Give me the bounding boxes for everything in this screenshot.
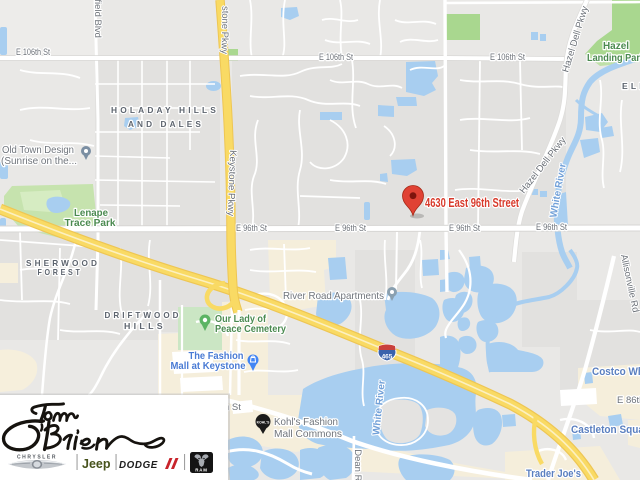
svg-text:ELLER: ELLER [622, 81, 640, 91]
svg-text:Mall at Keystone: Mall at Keystone [171, 360, 246, 372]
svg-text:HILLS: HILLS [124, 321, 166, 331]
svg-text:DRIFTWOOD: DRIFTWOOD [105, 310, 182, 320]
svg-text:Mall Commons: Mall Commons [274, 428, 342, 440]
svg-text:E 106th St: E 106th St [16, 47, 50, 58]
svg-text:Castleton Squa: Castleton Squa [571, 424, 640, 436]
svg-text:stfield Blvd: stfield Blvd [92, 0, 103, 38]
svg-text:Keystone Pkwy: Keystone Pkwy [225, 150, 238, 217]
svg-text:AND DALES: AND DALES [128, 119, 204, 129]
svg-text:CHRYSLER: CHRYSLER [17, 455, 57, 461]
svg-text:Kohl's Fashion: Kohl's Fashion [274, 416, 338, 428]
svg-text:E 106th St: E 106th St [319, 52, 353, 63]
svg-text:Hazel: Hazel [603, 40, 629, 52]
svg-text:E 96th St: E 96th St [449, 223, 480, 234]
svg-text:E 96th St: E 96th St [536, 222, 567, 233]
svg-text:465: 465 [382, 354, 393, 361]
svg-text:E 106th St: E 106th St [490, 52, 525, 63]
svg-text:Costco Wh: Costco Wh [592, 366, 640, 378]
svg-text:Trader Joe's: Trader Joe's [526, 468, 581, 480]
svg-text:RAM: RAM [195, 468, 207, 473]
svg-text:E 86th St: E 86th St [617, 395, 640, 406]
svg-text:River Road Apartments: River Road Apartments [283, 290, 384, 302]
svg-text:E 96th St: E 96th St [335, 223, 366, 234]
svg-text:(Sunrise on the...: (Sunrise on the... [1, 155, 77, 167]
svg-text:KOHL'S: KOHL'S [257, 421, 270, 425]
svg-text:Dean Rd: Dean Rd [352, 449, 363, 480]
svg-text:Peace Cemetery: Peace Cemetery [215, 323, 286, 335]
svg-text:Landing Park: Landing Park [587, 52, 640, 64]
svg-text:4630 East 96th Street: 4630 East 96th Street [425, 196, 520, 210]
svg-text:FOREST: FOREST [38, 267, 83, 277]
svg-text:Jeep: Jeep [82, 457, 111, 471]
svg-text:stone Pkwy: stone Pkwy [219, 6, 231, 54]
svg-text:HOLADAY HILLS: HOLADAY HILLS [111, 105, 219, 115]
svg-text:Trace Park: Trace Park [65, 217, 116, 229]
svg-text:DODGE: DODGE [119, 460, 158, 471]
svg-text:E 96th St: E 96th St [236, 223, 267, 234]
